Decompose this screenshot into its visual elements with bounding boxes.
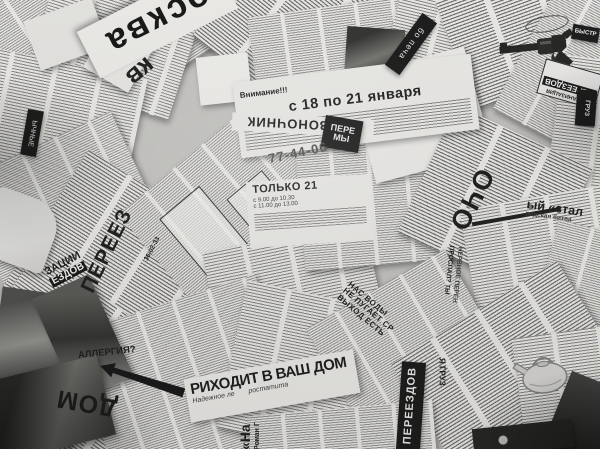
cargo-text: Я ГРУЗ <box>437 358 445 404</box>
black-badge: ГРУЗ <box>575 89 597 126</box>
book-title: «На <box>238 398 253 449</box>
badge-text: БЫСТР <box>574 28 597 38</box>
badge-text: ЫЧНЫЕ <box>26 119 38 147</box>
badge-text: ГРУЗ <box>582 100 590 116</box>
fine-print-lines <box>254 205 367 231</box>
moving-strip-text: ПЕРЕЕЗДОВ <box>403 367 420 445</box>
kettle-sketch <box>509 342 578 402</box>
attention-label: Внимание!!! <box>239 85 288 100</box>
only21-scrap: ТОЛЬКО 21 с 9.00 до 10.30 с 11.00 до 13.… <box>246 174 374 248</box>
cargo-text-line: Я ГРУЗ <box>437 358 445 386</box>
black-label-line2: МЫ <box>332 133 350 145</box>
book-spine-text: «На Роман Г <box>238 398 261 449</box>
newspaper-collage-photo: осква кв Внимание!!! с 18 по 21 января П… <box>0 0 600 449</box>
book-author: Роман Г <box>254 398 261 449</box>
